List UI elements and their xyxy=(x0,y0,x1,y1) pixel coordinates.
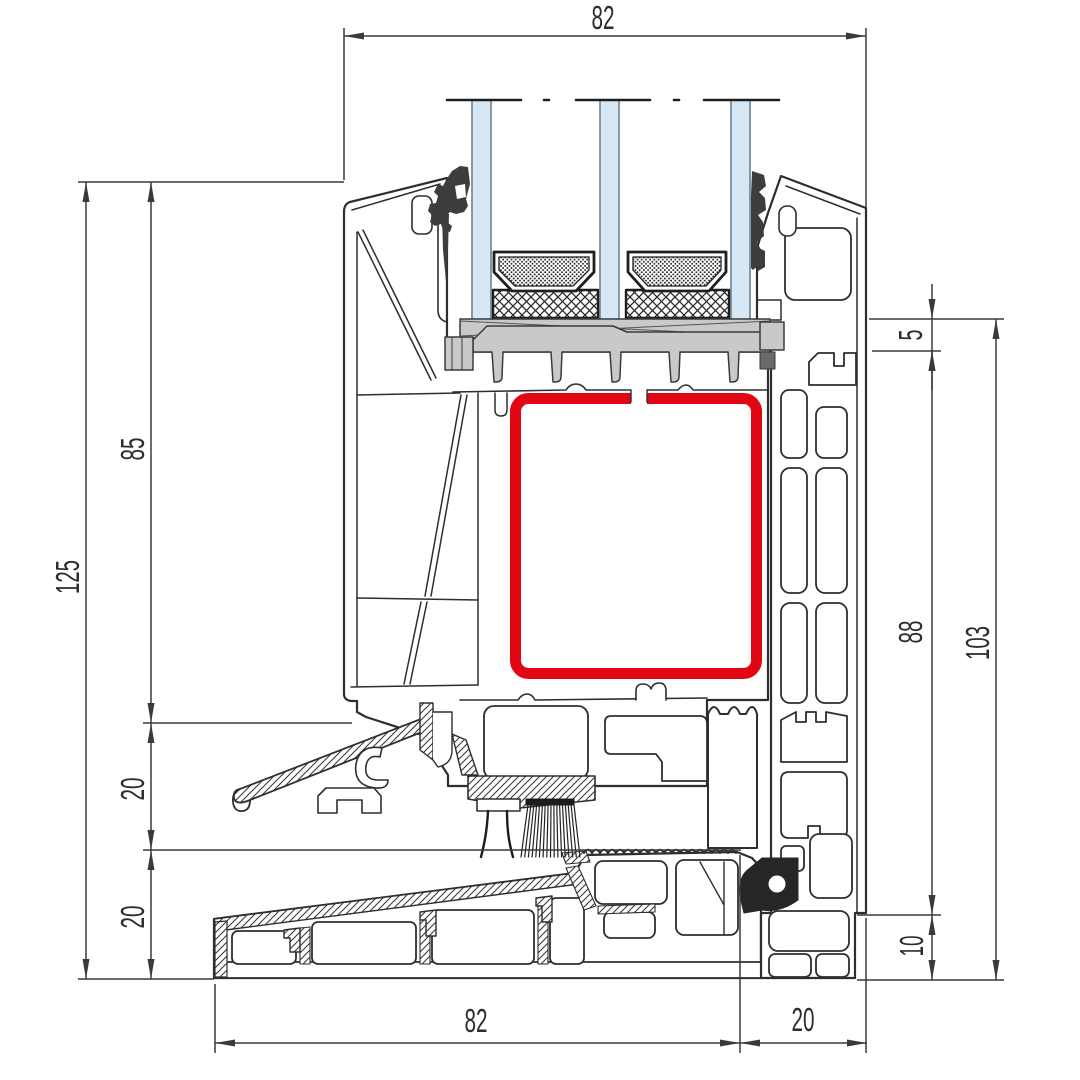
svg-text:103: 103 xyxy=(959,626,996,660)
svg-text:5: 5 xyxy=(892,330,929,341)
svg-text:82: 82 xyxy=(592,0,615,36)
svg-text:20: 20 xyxy=(114,906,151,929)
svg-text:88: 88 xyxy=(892,621,929,644)
svg-text:10: 10 xyxy=(893,936,930,957)
svg-text:20: 20 xyxy=(792,1001,815,1038)
svg-text:125: 125 xyxy=(49,560,86,594)
svg-text:82: 82 xyxy=(465,1002,488,1039)
svg-text:85: 85 xyxy=(114,438,151,461)
svg-text:20: 20 xyxy=(114,778,151,801)
